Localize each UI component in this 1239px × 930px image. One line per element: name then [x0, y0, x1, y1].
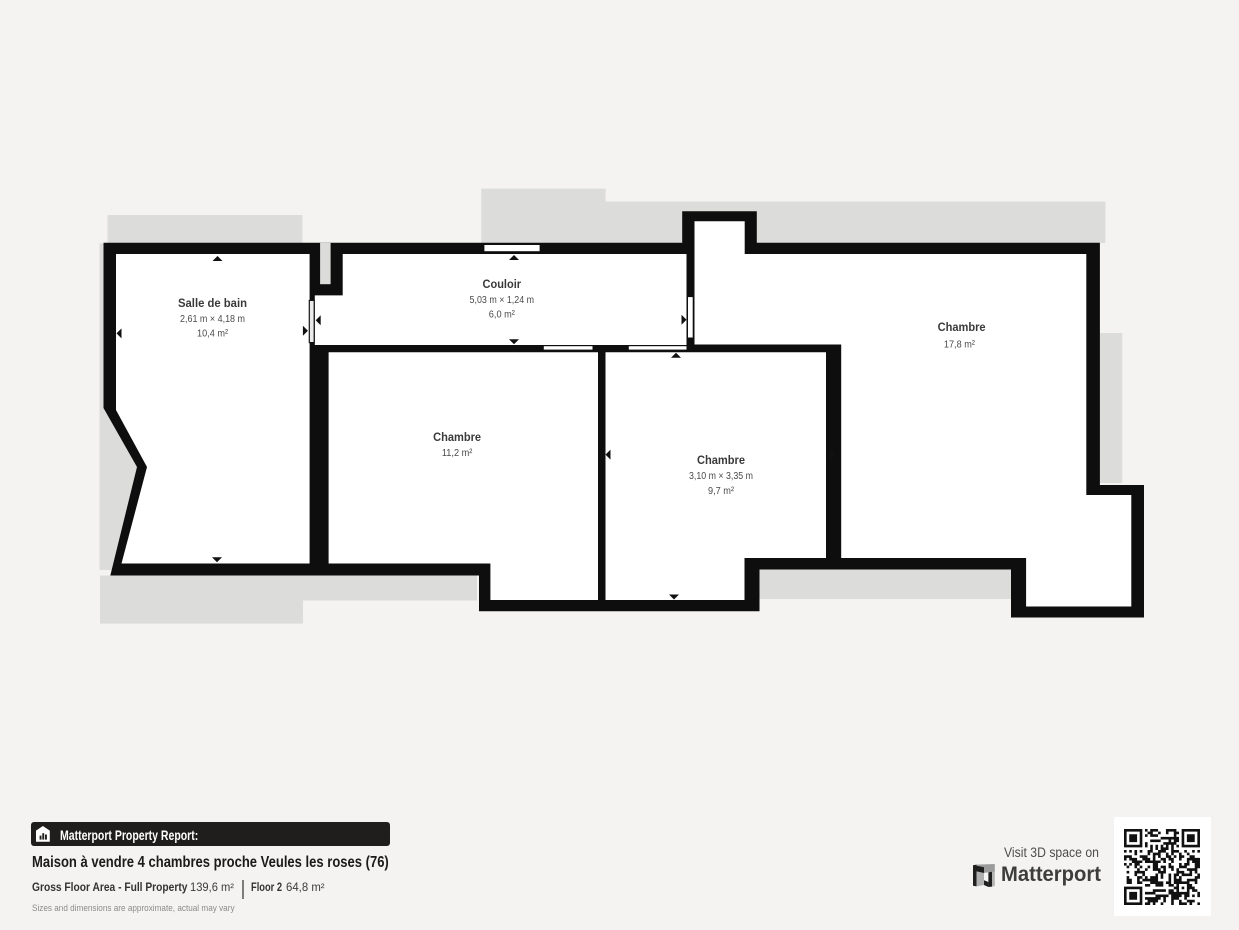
svg-text:9,7 m²: 9,7 m²	[708, 486, 735, 497]
svg-text:3,10 m × 3,35 m: 3,10 m × 3,35 m	[689, 471, 753, 482]
svg-text:5,03 m × 1,24 m: 5,03 m × 1,24 m	[470, 295, 535, 306]
svg-text:Salle de bain: Salle de bain	[178, 298, 247, 310]
svg-text:10,4 m²: 10,4 m²	[197, 329, 229, 340]
svg-text:6,0 m²: 6,0 m²	[489, 310, 516, 321]
svg-text:Chambre: Chambre	[697, 455, 745, 467]
svg-text:11,2 m²: 11,2 m²	[442, 448, 473, 459]
svg-text:Chambre: Chambre	[938, 322, 986, 334]
svg-text:17,8 m²: 17,8 m²	[944, 340, 976, 351]
svg-text:2,61 m × 4,18 m: 2,61 m × 4,18 m	[180, 314, 245, 325]
svg-text:Couloir: Couloir	[483, 279, 522, 291]
svg-text:Chambre: Chambre	[433, 432, 481, 444]
